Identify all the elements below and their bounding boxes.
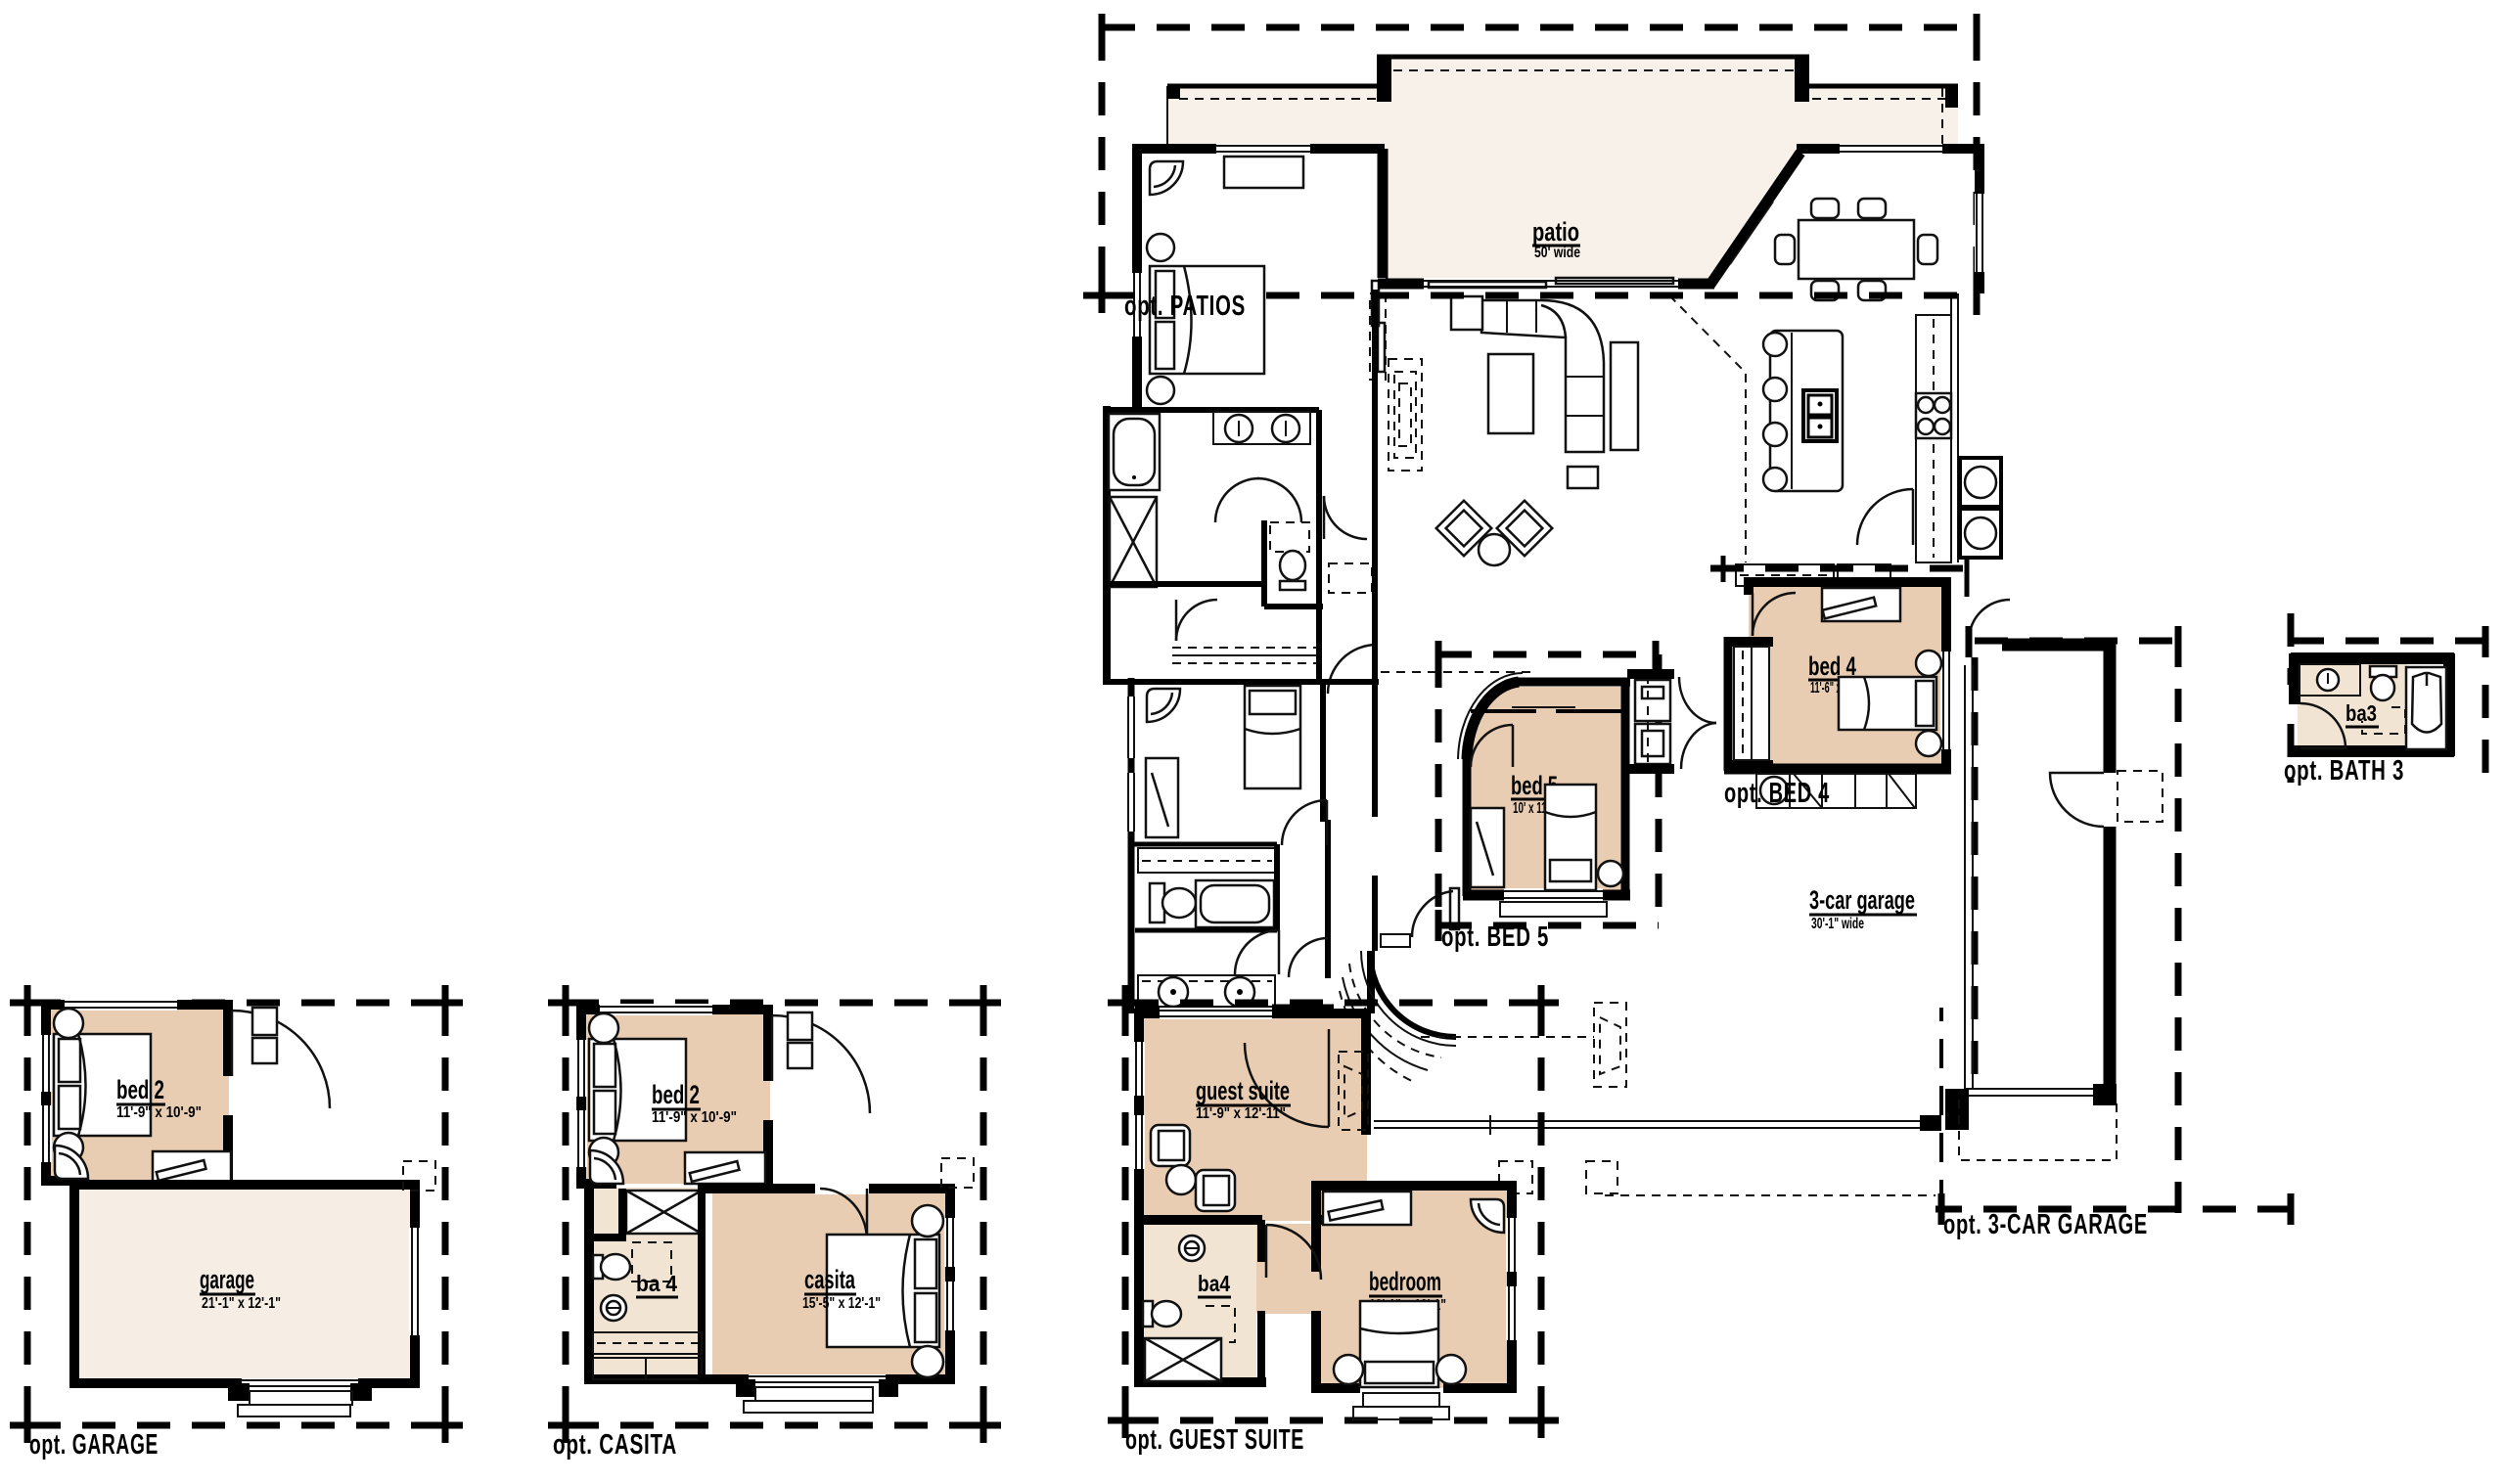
svg-text:bed 2: bed 2 — [652, 1080, 700, 1109]
svg-text:30'-1" wide: 30'-1" wide — [1811, 916, 1864, 932]
svg-text:patio: patio — [1532, 217, 1579, 247]
svg-text:3-car garage: 3-car garage — [1809, 885, 1915, 915]
svg-text:15'-5" x 12'-1": 15'-5" x 12'-1" — [802, 1295, 881, 1312]
svg-text:guest suite: guest suite — [1196, 1076, 1290, 1105]
svg-text:11'-9" x 12'-11": 11'-9" x 12'-11" — [1196, 1105, 1286, 1122]
svg-text:10' x 11': 10' x 11' — [1513, 800, 1549, 817]
svg-text:casita: casita — [804, 1265, 856, 1294]
svg-text:garage: garage — [200, 1265, 254, 1294]
svg-text:opt. GUEST SUITE: opt. GUEST SUITE — [1125, 1424, 1304, 1456]
svg-text:opt. BATH 3: opt. BATH 3 — [2284, 755, 2404, 787]
svg-text:opt. BED 4: opt. BED 4 — [1724, 778, 1830, 809]
svg-text:opt. CASITA: opt. CASITA — [553, 1429, 677, 1461]
svg-text:11'-9" x 10'-9": 11'-9" x 10'-9" — [116, 1104, 202, 1121]
svg-text:50' wide: 50' wide — [1534, 245, 1580, 261]
svg-text:opt. 3-CAR GARAGE: opt. 3-CAR GARAGE — [1943, 1209, 2148, 1240]
svg-text:ba3: ba3 — [2346, 700, 2377, 726]
svg-text:bedroom: bedroom — [1369, 1267, 1441, 1296]
svg-text:21'-1" x 12'-1": 21'-1" x 12'-1" — [202, 1295, 281, 1312]
svg-text:ba 4: ba 4 — [636, 1271, 677, 1296]
svg-text:bed 2: bed 2 — [116, 1075, 164, 1104]
svg-text:opt. PATIOS: opt. PATIOS — [1124, 291, 1246, 322]
svg-text:opt. BED 5: opt. BED 5 — [1441, 922, 1549, 953]
svg-text:ba4: ba4 — [1198, 1271, 1230, 1296]
svg-text:opt. GARAGE: opt. GARAGE — [29, 1429, 159, 1461]
svg-text:11'-9" x 10'-9": 11'-9" x 10'-9" — [652, 1109, 737, 1126]
